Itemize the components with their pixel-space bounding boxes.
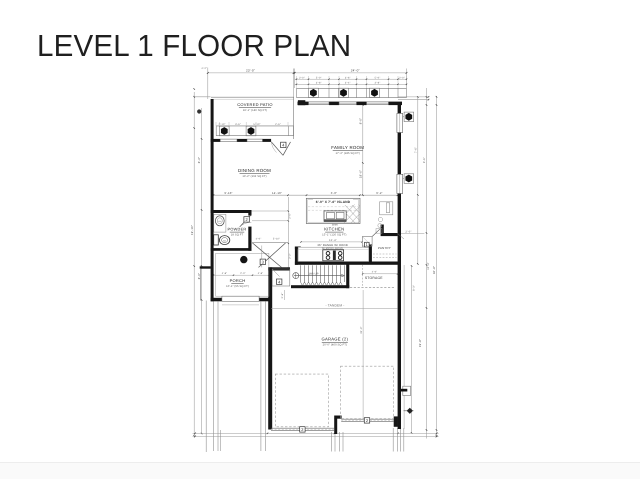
svg-text:9'-6": 9'-6" (423, 157, 426, 163)
svg-text:7'-10": 7'-10" (218, 123, 225, 126)
svg-text:2'-0": 2'-0" (299, 76, 305, 79)
svg-text:2'-0": 2'-0" (399, 76, 405, 79)
svg-text:4'-8": 4'-8" (222, 272, 228, 275)
svg-text:24'-0": 24'-0" (351, 69, 360, 73)
svg-text:6'-2": 6'-2" (376, 191, 383, 195)
svg-text:FAMILY ROOM: FAMILY ROOM (331, 145, 364, 150)
svg-text:36" RANGE W/ HOOD: 36" RANGE W/ HOOD (317, 244, 348, 247)
svg-text:3'-4": 3'-4" (345, 81, 351, 84)
svg-text:PANTRY: PANTRY (378, 246, 391, 250)
svg-text:6'-0" X 7'-6" ISLAND: 6'-0" X 7'-6" ISLAND (316, 200, 351, 204)
svg-text:5'-10": 5'-10" (273, 238, 280, 241)
svg-text:7'-6": 7'-6" (414, 147, 417, 153)
svg-text:DINING ROOM: DINING ROOM (238, 168, 271, 173)
svg-text:13'-2" (162 SQ FT): 13'-2" (162 SQ FT) (242, 175, 266, 178)
svg-text:SINK: SINK (332, 224, 339, 227)
svg-text:2'-6": 2'-6" (281, 293, 284, 299)
svg-text:15'-4": 15'-4" (329, 239, 337, 242)
svg-text:GARAGE (2): GARAGE (2) (321, 337, 348, 342)
svg-text:2'-6": 2'-6" (288, 213, 291, 219)
svg-text:4'-2": 4'-2" (201, 67, 207, 70)
svg-text:3'-8": 3'-8" (375, 81, 381, 84)
svg-text:8'-0": 8'-0" (413, 285, 416, 291)
svg-text:19'-10": 19'-10" (190, 225, 194, 235)
svg-text:10'-1" (55 SQ FT): 10'-1" (55 SQ FT) (226, 285, 249, 288)
svg-text:9'-10": 9'-10" (224, 191, 232, 195)
svg-text:5'-0": 5'-0" (316, 76, 322, 79)
svg-text:36'-8": 36'-8" (432, 266, 436, 274)
svg-text:3'-6": 3'-6" (345, 76, 351, 79)
svg-text:23'-0": 23'-0" (246, 69, 255, 73)
svg-text:4'-0": 4'-0" (256, 238, 262, 241)
svg-text:2'-6": 2'-6" (275, 123, 281, 126)
svg-text:W/ MICRO ABOVE: W/ MICRO ABOVE (322, 247, 344, 250)
svg-text:2'-0": 2'-0" (240, 272, 246, 275)
svg-text:8'-6": 8'-6" (197, 157, 201, 164)
svg-text:16'-1" (140 SQ FT): 16'-1" (140 SQ FT) (243, 109, 267, 112)
svg-text:16R UP: 16R UP (308, 273, 318, 276)
svg-text:18'-6": 18'-6" (358, 170, 362, 178)
svg-text:20'-0" (400 SQ FT): 20'-0" (400 SQ FT) (323, 344, 347, 347)
svg-text:12'-4": 12'-4" (427, 262, 430, 270)
svg-text:17'-2" (245 SQ FT): 17'-2" (245 SQ FT) (336, 152, 360, 155)
svg-text:STORAGE: STORAGE (365, 276, 383, 280)
svg-text:36'-8": 36'-8" (360, 326, 363, 334)
svg-text:8'-0": 8'-0" (358, 118, 362, 125)
svg-text:4'-8": 4'-8" (258, 272, 264, 275)
svg-text:2'-2": 2'-2" (289, 253, 292, 259)
svg-text:KITCHEN: KITCHEN (324, 227, 344, 232)
svg-text:5'-0": 5'-0" (331, 191, 338, 195)
svg-text:- TANDEM -: - TANDEM - (325, 304, 344, 308)
svg-text:19'-8": 19'-8" (418, 339, 422, 347)
svg-text:PORCH: PORCH (230, 278, 246, 283)
svg-text:5'-10": 5'-10" (253, 123, 260, 126)
svg-text:14'-10": 14'-10" (272, 191, 282, 195)
svg-text:COVERED PATIO: COVERED PATIO (237, 102, 273, 107)
svg-text:18 SQ FT: 18 SQ FT (231, 234, 244, 237)
svg-text:5'-0": 5'-0" (375, 76, 381, 79)
svg-text:8'-0": 8'-0" (197, 273, 201, 280)
svg-text:3'-6": 3'-6" (235, 123, 241, 126)
svg-text:2'-0": 2'-0" (405, 230, 411, 233)
svg-text:4'-0": 4'-0" (372, 271, 378, 274)
svg-text:15'-1" (120 SQ FT): 15'-1" (120 SQ FT) (322, 234, 346, 237)
svg-text:3'-8": 3'-8" (316, 81, 322, 84)
svg-text:POWDER: POWDER (227, 227, 246, 232)
